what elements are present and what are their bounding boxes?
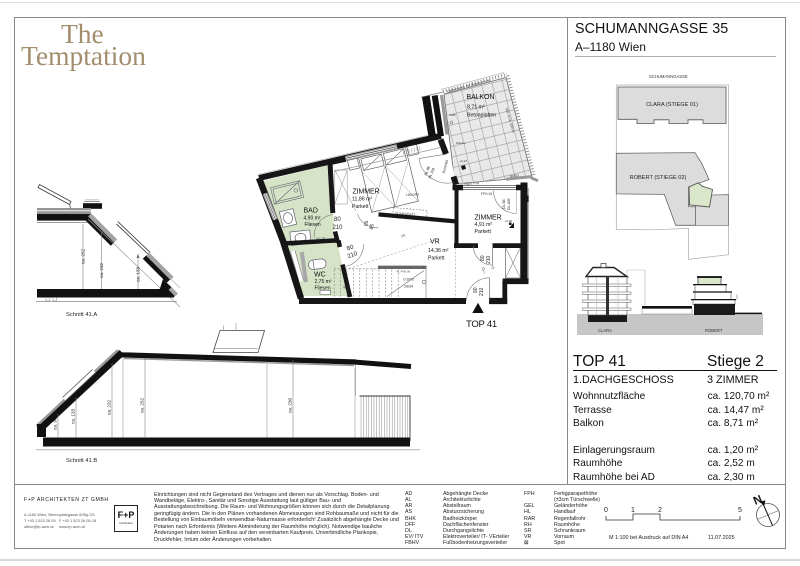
svg-text:Schnitt 41.A: Schnitt 41.A xyxy=(66,312,97,318)
svg-text:ca. 232: ca. 232 xyxy=(99,262,104,278)
svg-text:N: N xyxy=(752,494,764,508)
svg-text:8,71 m²: 8,71 m² xyxy=(467,105,485,111)
svg-text:Fliesen: Fliesen xyxy=(305,222,321,228)
svg-text:0.STG: 0.STG xyxy=(404,278,415,282)
svg-text:WC: WC xyxy=(314,272,326,279)
svg-text:ZIMMER: ZIMMER xyxy=(353,189,380,196)
svg-text:ca. 133: ca. 133 xyxy=(71,408,76,424)
svg-text:VR: VR xyxy=(430,239,440,246)
svg-text:11,86 m²: 11,86 m² xyxy=(352,197,372,203)
svg-text:4,91 m²: 4,91 m² xyxy=(475,222,493,228)
svg-text:SAB: SAB xyxy=(450,113,456,117)
svg-text:1: 1 xyxy=(631,507,635,514)
svg-text:FPH-16: FPH-16 xyxy=(481,192,492,196)
svg-text:14,36 m²: 14,36 m² xyxy=(428,248,449,254)
svg-text:2: 2 xyxy=(658,507,662,514)
svg-text:+0,00: +0,00 xyxy=(505,219,513,223)
svg-text:Betonplatten: Betonplatten xyxy=(467,113,496,119)
svg-text:ca. 252: ca. 252 xyxy=(81,248,86,264)
svg-text:Fliesen: Fliesen xyxy=(315,285,331,291)
svg-text:BALKON: BALKON xyxy=(467,94,495,101)
svg-text:ca. 133: ca. 133 xyxy=(136,266,141,282)
svg-text:19/34: 19/34 xyxy=(404,285,413,289)
svg-text:210: 210 xyxy=(333,225,344,231)
svg-text:TOP 41: TOP 41 xyxy=(466,319,497,330)
svg-text:CLARA: CLARA xyxy=(598,328,612,333)
svg-text:Parkett: Parkett xyxy=(475,229,492,235)
svg-text:180x200: 180x200 xyxy=(406,192,419,197)
svg-text:+0,14: +0,14 xyxy=(460,159,468,163)
svg-text:ROBERT (STIEGE 02): ROBERT (STIEGE 02) xyxy=(630,175,687,181)
svg-text:Wasser: Wasser xyxy=(456,141,466,145)
svg-text:Parkett: Parkett xyxy=(428,256,445,262)
svg-text:BAD: BAD xyxy=(304,208,318,215)
svg-text:5: 5 xyxy=(738,507,742,514)
svg-text:DL 88: DL 88 xyxy=(502,200,506,209)
svg-text:0: 0 xyxy=(604,507,608,514)
svg-text:ROBERT: ROBERT xyxy=(705,328,723,333)
svg-text:2,75 m²: 2,75 m² xyxy=(315,279,332,285)
svg-text:DL 265: DL 265 xyxy=(507,199,511,210)
svg-text:210: 210 xyxy=(479,287,485,296)
svg-text:ca. 90: ca. 90 xyxy=(53,417,58,430)
svg-text:SCHUMANNGASSE: SCHUMANNGASSE xyxy=(649,74,688,79)
svg-text:ca. 230: ca. 230 xyxy=(288,397,293,413)
svg-text:Schnitt 41.B: Schnitt 41.B xyxy=(66,458,97,464)
svg-text:80: 80 xyxy=(334,217,341,223)
svg-text:Parkett: Parkett xyxy=(352,204,369,210)
svg-text:ZIMMER: ZIMMER xyxy=(475,215,502,222)
svg-text:KL FHB 08: KL FHB 08 xyxy=(397,270,411,274)
svg-text:ca. 252: ca. 252 xyxy=(140,397,145,413)
svg-text:CLARA (STIEGE 01): CLARA (STIEGE 01) xyxy=(646,102,698,108)
svg-text:ca. 232: ca. 232 xyxy=(107,399,112,415)
svg-text:Rigol. FTA: Rigol. FTA xyxy=(464,181,480,186)
svg-text:4,90 m²: 4,90 m² xyxy=(304,215,321,221)
svg-text:BAKO: BAKO xyxy=(510,173,520,178)
svg-text:210: 210 xyxy=(486,255,492,264)
